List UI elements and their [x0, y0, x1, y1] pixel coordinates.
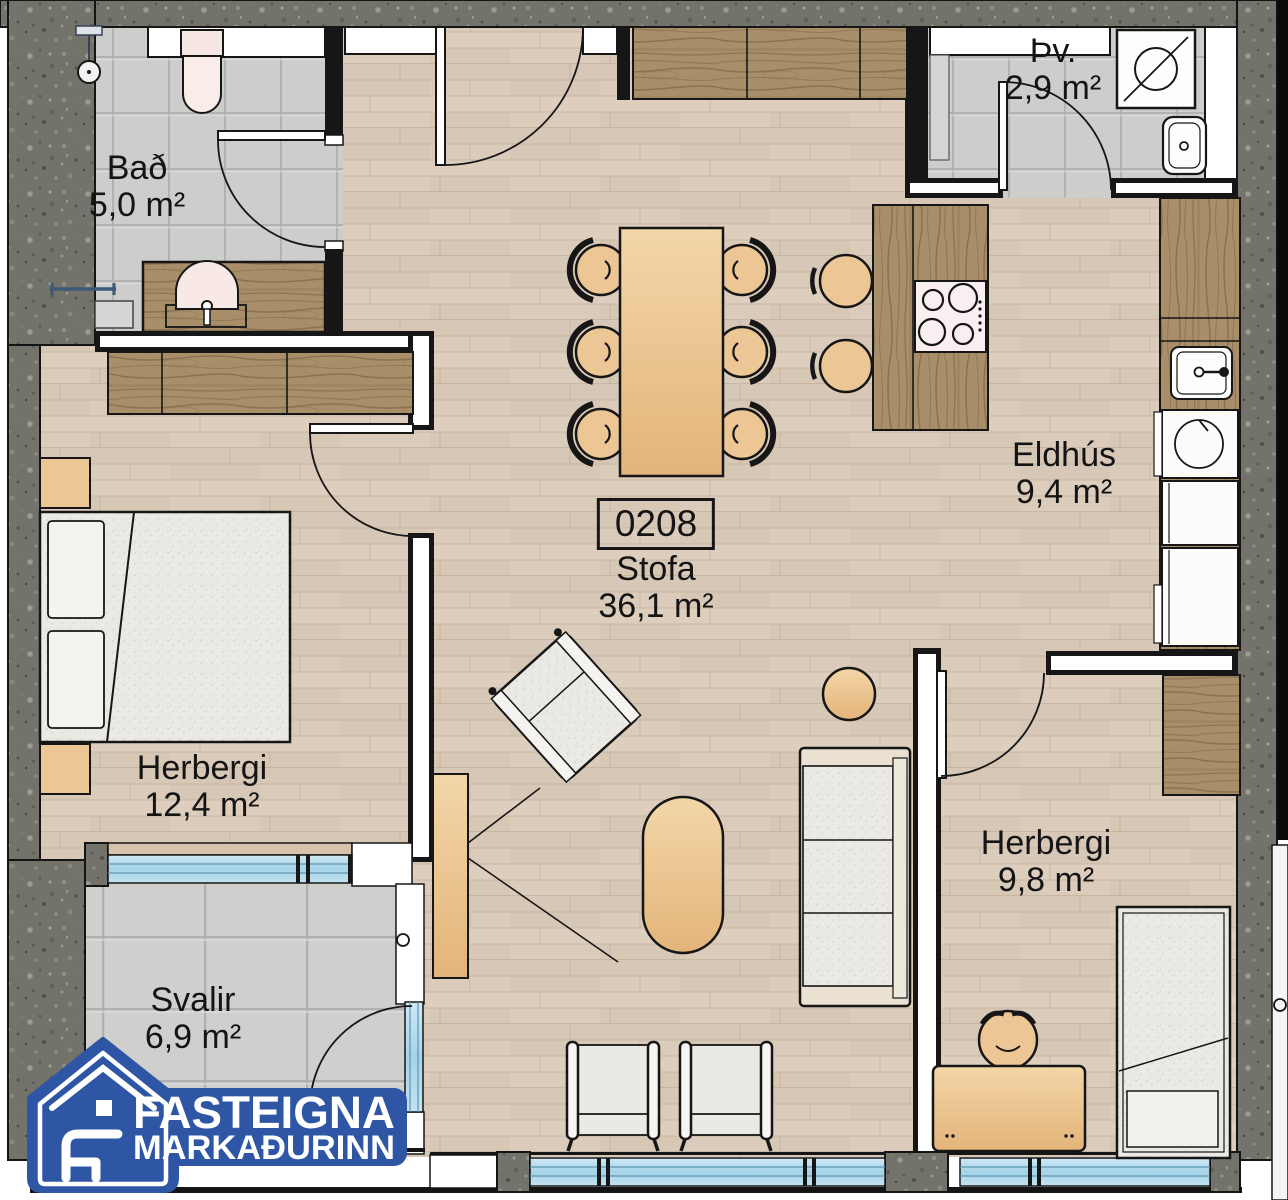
dining-set: [570, 228, 773, 476]
room-name: Herbergi: [981, 825, 1111, 862]
laundry-west-wall: [905, 27, 928, 180]
wall-right: [1237, 0, 1277, 1160]
fridge: [1162, 481, 1238, 545]
room-area: 9,4 m²: [1012, 474, 1116, 511]
bathroom-bench: [95, 301, 133, 328]
bedroom1-balcony-window: [108, 855, 352, 883]
entry-sideboard: [633, 27, 907, 99]
bathroom-east-wall: [325, 27, 343, 137]
wall-left-mid: [8, 345, 40, 860]
room-label-laundry: Þv. 2,9 m²: [1005, 33, 1101, 107]
bathroom-vanity: [143, 261, 325, 332]
single-bed: [1117, 907, 1230, 1158]
room-area: 5,0 m²: [89, 187, 185, 224]
room-label-bedroom2: Herbergi 9,8 m²: [981, 825, 1111, 899]
double-bed: [40, 512, 290, 742]
room-label-living-room: Stofa 36,1 m²: [598, 551, 713, 625]
room-name: Svalir: [145, 982, 241, 1019]
adjacent-unit-strip: [1272, 845, 1288, 1200]
room-label-balcony: Svalir 6,9 m²: [145, 982, 241, 1056]
bedroom2-window: [960, 1158, 1210, 1186]
room-name: Bað: [89, 150, 185, 187]
laundry-sink: [1163, 117, 1206, 174]
wall-top: [0, 0, 1288, 27]
room-area: 6,9 m²: [145, 1019, 241, 1056]
room-label-bathroom: Bað 5,0 m²: [89, 150, 185, 224]
sofa: [800, 748, 910, 1006]
balcony-east-wall: [396, 884, 424, 1004]
room-name: Stofa: [598, 551, 713, 588]
cooktop: [915, 281, 986, 352]
nightstand: [40, 458, 90, 508]
room-label-kitchen: Eldhús 9,4 m²: [1012, 437, 1116, 511]
wall-right-edge: [1277, 0, 1288, 840]
dining-table: [620, 228, 723, 476]
kitchen-sink: [1171, 347, 1232, 399]
room-area: 2,9 m²: [1005, 70, 1101, 107]
nightstand: [40, 744, 90, 794]
logo-line2: MARKAÐURINN: [133, 1129, 395, 1167]
living-room-window: [530, 1158, 885, 1186]
room-area: 36,1 m²: [598, 588, 713, 625]
dishwasher: [1162, 410, 1238, 478]
washing-machine: [1117, 30, 1195, 108]
freezer: [1162, 548, 1238, 646]
toilet: [181, 30, 223, 113]
kitchen-counter: [1154, 198, 1240, 650]
desk: [933, 1066, 1085, 1151]
coffee-table: [643, 797, 723, 953]
desk-chair: [979, 1011, 1037, 1069]
room-name: Eldhús: [1012, 437, 1116, 474]
bedroom2-wardrobe: [1163, 675, 1240, 795]
side-table: [823, 668, 875, 720]
lounge-chair: [680, 1042, 772, 1151]
lounge-chair: [567, 1042, 659, 1151]
floor-plan-page: FASTEIGNA MARKAÐURINN Bað 5,0 m² Þv. 2,9…: [0, 0, 1288, 1200]
bedroom1-window-sill: [108, 843, 352, 855]
unit-number-box: 0208: [597, 498, 715, 550]
room-name: Herbergi: [137, 750, 267, 787]
room-name: Þv.: [1005, 33, 1101, 70]
room-area: 9,8 m²: [981, 862, 1111, 899]
bedroom1-wardrobe: [108, 352, 413, 414]
laundry-cabinet: [930, 55, 949, 160]
room-label-bedroom1: Herbergi 12,4 m²: [137, 750, 267, 824]
room-area: 12,4 m²: [137, 787, 267, 824]
